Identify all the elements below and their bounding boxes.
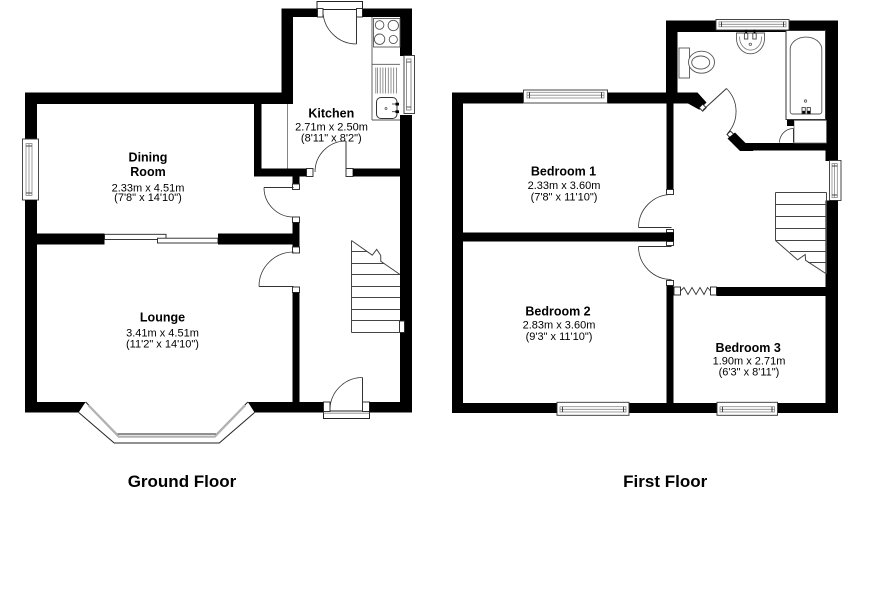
svg-text:(11'2" x 14'10"): (11'2" x 14'10") bbox=[126, 339, 199, 351]
svg-text:Lounge: Lounge bbox=[140, 311, 185, 325]
svg-text:First Floor: First Floor bbox=[623, 472, 707, 491]
svg-text:Bedroom 1: Bedroom 1 bbox=[531, 165, 596, 179]
svg-text:(6'3" x 8'11"): (6'3" x 8'11") bbox=[719, 367, 780, 379]
svg-text:(7'8" x 14'10"): (7'8" x 14'10") bbox=[114, 192, 182, 204]
svg-text:2.83m x 3.60m: 2.83m x 3.60m bbox=[523, 320, 596, 332]
svg-text:Bedroom 3: Bedroom 3 bbox=[716, 341, 781, 355]
svg-text:Kitchen: Kitchen bbox=[308, 107, 354, 121]
svg-text:(8'11" x 8'2"): (8'11" x 8'2") bbox=[301, 133, 362, 145]
svg-text:2.33m x 3.60m: 2.33m x 3.60m bbox=[528, 180, 601, 192]
svg-text:(9'3" x 11'10"): (9'3" x 11'10") bbox=[526, 331, 593, 343]
svg-text:(7'8" x 11'10"): (7'8" x 11'10") bbox=[531, 192, 598, 204]
svg-text:Room: Room bbox=[130, 165, 165, 179]
svg-text:Bedroom 2: Bedroom 2 bbox=[525, 305, 590, 319]
svg-text:Dining: Dining bbox=[129, 151, 168, 165]
svg-text:Ground Floor: Ground Floor bbox=[128, 472, 237, 491]
